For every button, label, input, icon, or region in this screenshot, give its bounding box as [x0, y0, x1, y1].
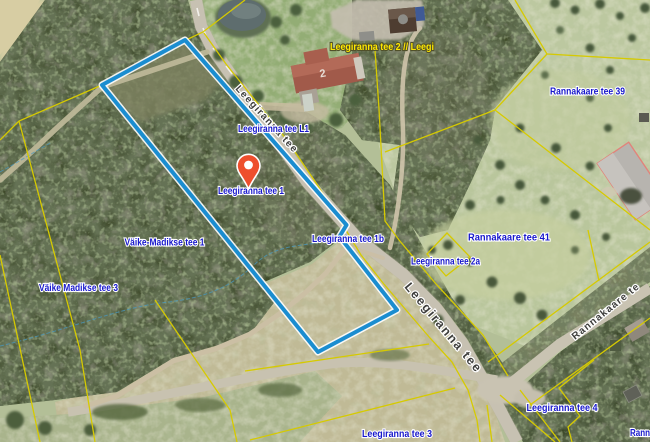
- svg-text:Leegiranna tee 1b: Leegiranna tee 1b: [312, 234, 384, 245]
- svg-text:Leegiranna tee 4: Leegiranna tee 4: [527, 403, 598, 414]
- svg-text:Rannakaare tee 39: Rannakaare tee 39: [550, 87, 625, 98]
- svg-text:Leegiranna tee 1: Leegiranna tee 1: [218, 186, 284, 197]
- svg-text:Väike Madikse tee 3: Väike Madikse tee 3: [39, 283, 118, 294]
- svg-text:Rann: Rann: [630, 428, 650, 439]
- svg-text:Rannakaare tee 41: Rannakaare tee 41: [468, 233, 550, 244]
- svg-text:Leegiranna tee 3: Leegiranna tee 3: [362, 429, 432, 440]
- svg-text:Leegiranna tee 2 // Leegi: Leegiranna tee 2 // Leegi: [330, 42, 434, 53]
- svg-text:Väike-Madikse tee 1: Väike-Madikse tee 1: [125, 238, 205, 249]
- svg-text:Leegiranna tee L1: Leegiranna tee L1: [238, 124, 309, 135]
- svg-text:Leegiranna tee 2a: Leegiranna tee 2a: [411, 257, 480, 268]
